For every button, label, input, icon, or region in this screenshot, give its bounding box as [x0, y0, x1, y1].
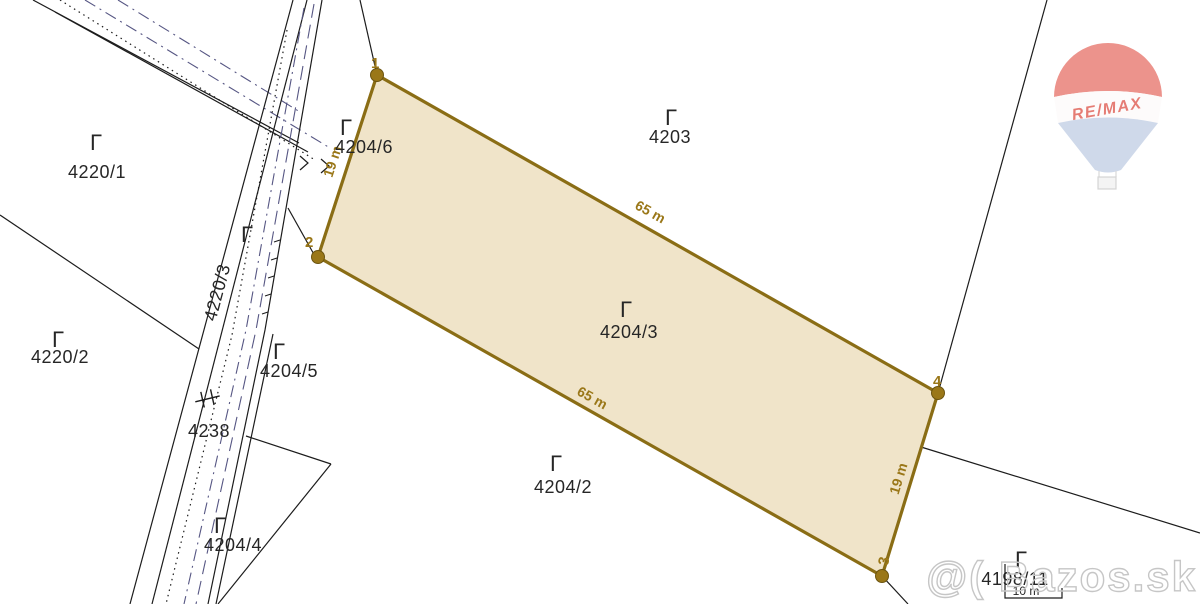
vertex-dot-3 — [876, 570, 889, 583]
landuse-symbol-icon: Γ — [90, 130, 102, 155]
map-canvas: 1 2 3 4 19 m 65 m 65 m 19 m Γ 4220/1 Γ 4… — [0, 0, 1200, 604]
corner-number-2: 2 — [305, 234, 313, 251]
parcel-label-4220-2: 4220/2 — [31, 347, 89, 367]
landuse-symbol-icon: Γ — [620, 297, 632, 322]
parcel-label-4203: 4203 — [649, 127, 691, 147]
parcel-label-4204-3: 4204/3 — [600, 322, 658, 342]
balloon-basket — [1098, 177, 1116, 189]
parcel-label-4204-2: 4204/2 — [534, 477, 592, 497]
parcel-label-4204-6: 4204/6 — [335, 137, 393, 157]
parcel-label-4204-5: 4204/5 — [260, 361, 318, 381]
landuse-symbol-icon: Γ — [241, 222, 253, 247]
parcel-label-4238: 4238 — [188, 421, 230, 441]
vertex-dot-2 — [312, 251, 325, 264]
cadastral-map: 1 2 3 4 19 m 65 m 65 m 19 m Γ 4220/1 Γ 4… — [0, 0, 1200, 604]
landuse-symbol-icon: Γ — [550, 451, 562, 476]
parcel-label-4220-1: 4220/1 — [68, 162, 126, 182]
corner-number-1: 1 — [371, 55, 379, 72]
parcel-label-4204-4: 4204/4 — [204, 535, 262, 555]
bazos-watermark: @( Bazos.sk — [926, 553, 1197, 600]
corner-number-4: 4 — [933, 373, 942, 390]
